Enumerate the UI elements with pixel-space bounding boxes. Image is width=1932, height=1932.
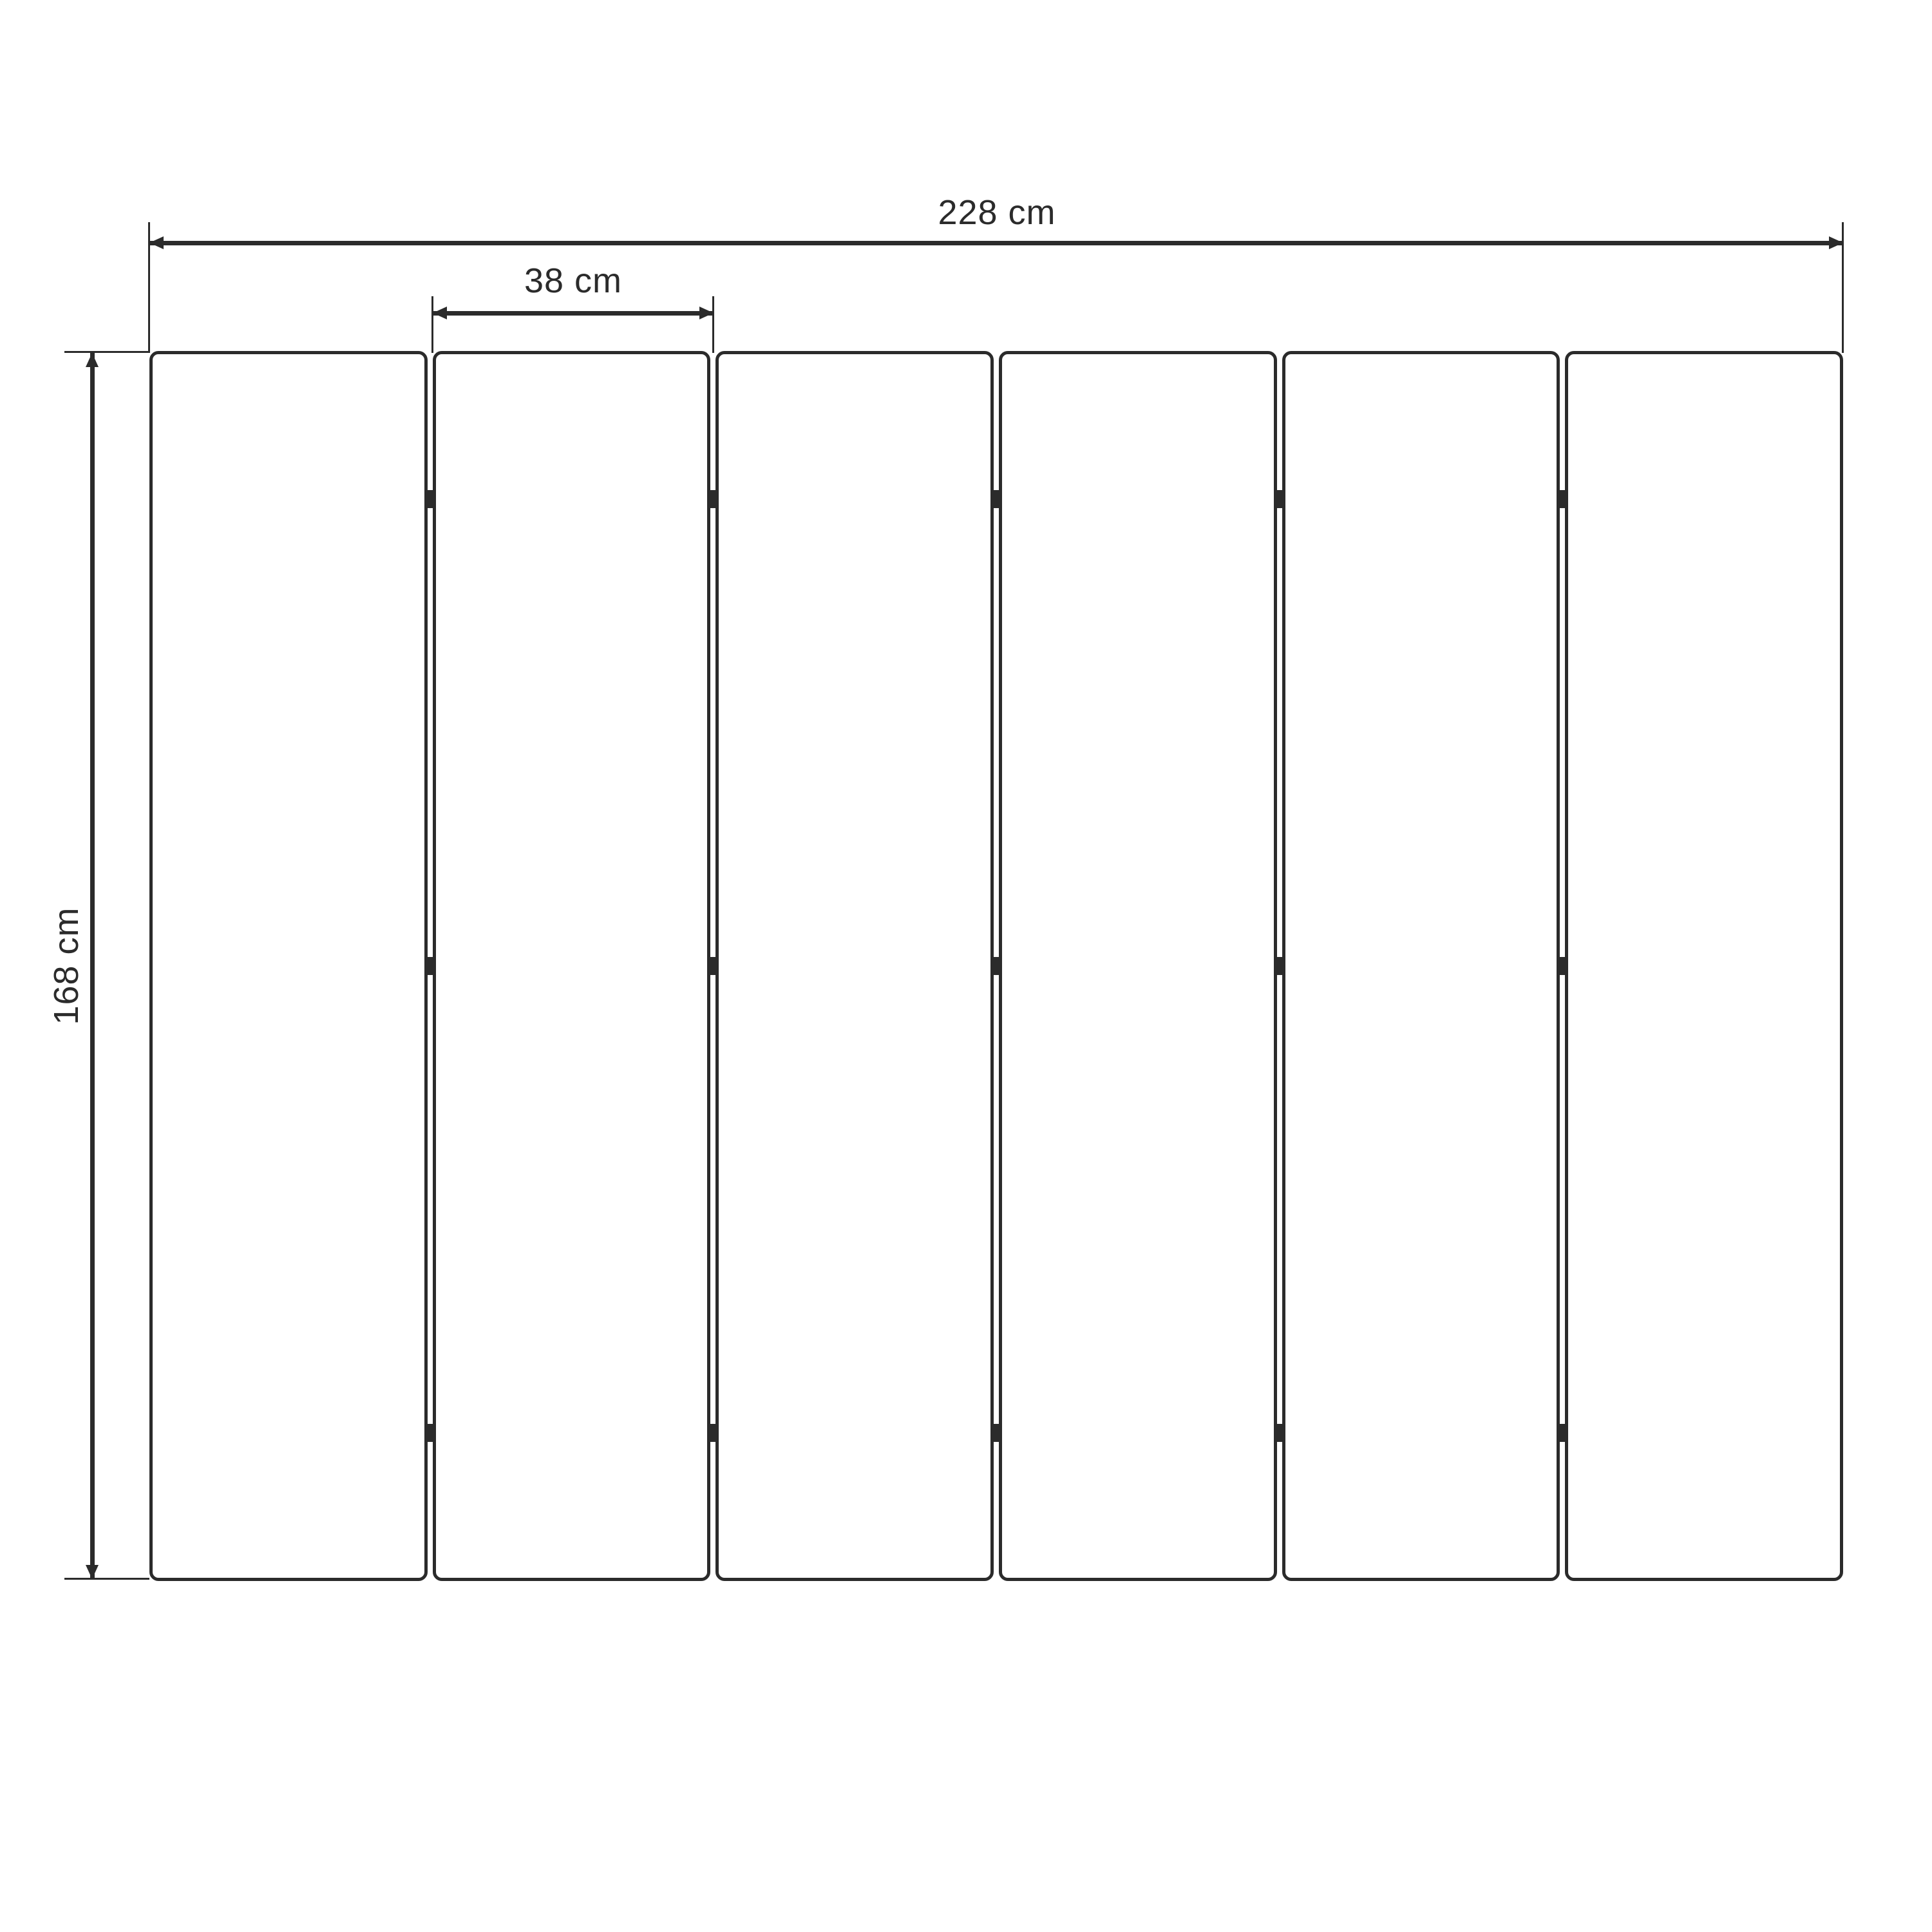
hinge-mark-gap1-row3: [426, 1424, 434, 1442]
extension-line-top: [64, 351, 149, 353]
dimension-line-height: [90, 353, 95, 1579]
hinge-mark-gap2-row2: [709, 957, 717, 975]
total-width-label: 228 cm: [900, 193, 1094, 232]
panel-6: [1565, 351, 1843, 1581]
panel-3: [715, 351, 994, 1581]
hinge-mark-gap4-row3: [1275, 1424, 1283, 1442]
arrowhead-down-icon: [86, 1565, 99, 1579]
dimension-line-panel-width: [433, 311, 714, 316]
arrowhead-right-icon: [1829, 236, 1843, 249]
extension-line-bottom: [64, 1578, 149, 1580]
hinge-mark-gap3-row3: [992, 1424, 1001, 1442]
dimension-diagram: 228 cm 38 cm 168 cm: [0, 0, 1932, 1932]
hinge-mark-gap4-row2: [1275, 957, 1283, 975]
arrowhead-right-icon: [699, 307, 714, 319]
arrowhead-left-icon: [433, 307, 447, 319]
hinge-mark-gap2-row3: [709, 1424, 717, 1442]
hinge-mark-gap3-row1: [992, 490, 1001, 508]
panel-2: [433, 351, 711, 1581]
hinge-mark-gap2-row1: [709, 490, 717, 508]
arrowhead-left-icon: [149, 236, 164, 249]
panel-1: [149, 351, 428, 1581]
height-label: 168 cm: [47, 869, 86, 1063]
panel-5: [1282, 351, 1560, 1581]
arrowhead-up-icon: [86, 353, 99, 367]
hinge-mark-gap4-row1: [1275, 490, 1283, 508]
panel-width-label: 38 cm: [477, 261, 670, 300]
panel-4: [999, 351, 1277, 1581]
hinge-mark-gap3-row2: [992, 957, 1001, 975]
extension-line-left: [431, 296, 433, 353]
hinge-mark-gap1-row2: [426, 957, 434, 975]
hinge-mark-gap5-row3: [1558, 1424, 1567, 1442]
dimension-line-total-width: [149, 241, 1843, 245]
extension-line-right: [712, 296, 714, 353]
hinge-mark-gap5-row1: [1558, 490, 1567, 508]
hinge-mark-gap1-row1: [426, 490, 434, 508]
hinge-mark-gap5-row2: [1558, 957, 1567, 975]
